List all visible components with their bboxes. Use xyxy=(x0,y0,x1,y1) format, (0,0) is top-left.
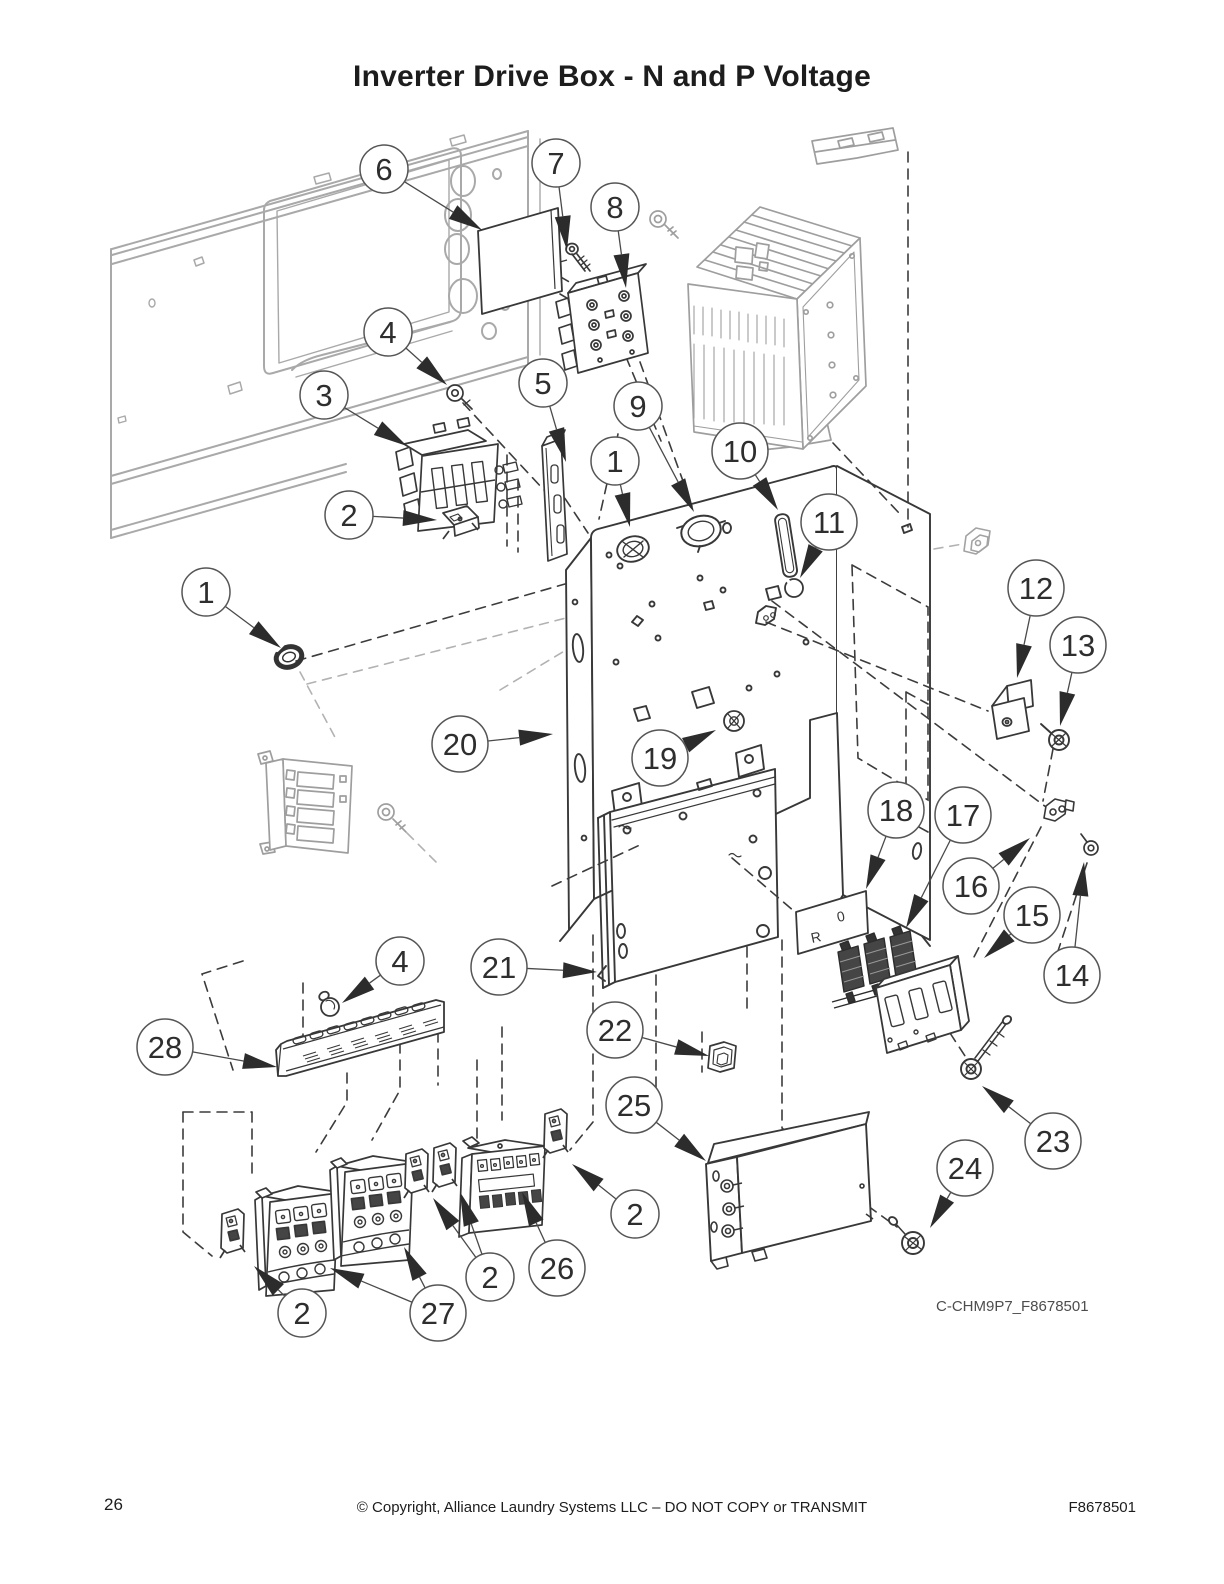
callout-28: 28 xyxy=(137,1019,277,1075)
cage-clip-ghost xyxy=(964,528,990,554)
exploded-parts-diagram: 0 R xyxy=(0,0,1224,1584)
svg-text:5: 5 xyxy=(534,366,551,401)
din-rail-28 xyxy=(276,1000,444,1076)
callout-1: 1 xyxy=(591,437,639,527)
callout-21: 21 xyxy=(471,939,597,995)
svg-text:4: 4 xyxy=(379,315,396,350)
footer-copyright: © Copyright, Alliance Laundry Systems LL… xyxy=(0,1499,1224,1516)
cover-plate xyxy=(478,208,567,314)
callout-20: 20 xyxy=(432,716,553,772)
callout-4: 4 xyxy=(342,937,424,1003)
svg-text:8: 8 xyxy=(606,190,623,225)
svg-text:1: 1 xyxy=(606,444,623,479)
svg-text:26: 26 xyxy=(540,1251,574,1286)
svg-text:15: 15 xyxy=(1015,898,1049,933)
svg-text:20: 20 xyxy=(443,727,477,762)
svg-text:3: 3 xyxy=(315,378,332,413)
svg-text:17: 17 xyxy=(946,798,980,833)
emi-filter-25 xyxy=(706,1112,873,1269)
svg-text:18: 18 xyxy=(879,793,913,828)
svg-text:2: 2 xyxy=(626,1197,643,1232)
svg-text:2: 2 xyxy=(481,1260,498,1295)
callout-25: 25 xyxy=(606,1077,706,1161)
svg-text:9: 9 xyxy=(629,389,646,424)
svg-text:23: 23 xyxy=(1036,1124,1070,1159)
svg-text:1: 1 xyxy=(197,575,214,610)
callout-26: 26 xyxy=(522,1192,585,1296)
label-plate-18 xyxy=(796,891,868,954)
svg-text:6: 6 xyxy=(375,152,392,187)
screw-14 xyxy=(1081,834,1098,855)
svg-text:24: 24 xyxy=(948,1151,982,1186)
svg-text:16: 16 xyxy=(954,869,988,904)
terminal-block-8 xyxy=(556,264,648,373)
fuse-holder-15 xyxy=(876,956,969,1053)
svg-text:19: 19 xyxy=(643,741,677,776)
grommet-1 xyxy=(274,643,305,670)
svg-text:22: 22 xyxy=(598,1013,632,1048)
svg-text:11: 11 xyxy=(813,505,845,540)
svg-text:25: 25 xyxy=(617,1088,651,1123)
aux-contact-2-right xyxy=(543,1109,568,1158)
bracket-12 xyxy=(992,680,1033,739)
clip-22 xyxy=(708,1042,736,1072)
aux-contact-2-mid2 xyxy=(432,1143,457,1192)
svg-text:2: 2 xyxy=(293,1296,310,1331)
aux-contact-2-mid1 xyxy=(404,1149,429,1198)
svg-text:27: 27 xyxy=(421,1296,455,1331)
screw-23 xyxy=(961,1014,1013,1079)
manual-page: Inverter Drive Box - N and P Voltage xyxy=(0,0,1224,1584)
screw-4-lower xyxy=(318,990,339,1016)
svg-text:7: 7 xyxy=(547,146,564,181)
svg-text:2: 2 xyxy=(340,498,357,533)
svg-text:14: 14 xyxy=(1055,958,1089,993)
contactor-27-right xyxy=(330,1156,413,1266)
cage-nut-16 xyxy=(1044,799,1074,821)
screw-13 xyxy=(1041,724,1069,750)
callout-24: 24 xyxy=(930,1140,993,1228)
svg-text:28: 28 xyxy=(148,1030,182,1065)
callout-1: 1 xyxy=(182,568,281,648)
inverter-drive-unit xyxy=(650,128,898,451)
callout-22: 22 xyxy=(587,1002,709,1058)
aux-contact-2-left xyxy=(220,1209,245,1258)
callout-3: 3 xyxy=(300,371,407,446)
svg-text:10: 10 xyxy=(723,434,757,469)
callout-23: 23 xyxy=(982,1086,1081,1169)
footer-doc-number: F8678501 xyxy=(1068,1499,1136,1516)
callout-4: 4 xyxy=(364,308,447,385)
callout-13: 13 xyxy=(1050,617,1106,726)
relay-assembly xyxy=(258,751,406,854)
svg-text:13: 13 xyxy=(1061,628,1095,663)
diagram-code: C-CHM9P7_F8678501 xyxy=(936,1298,1089,1315)
svg-text:4: 4 xyxy=(391,944,408,979)
callout-2: 2 xyxy=(572,1164,659,1238)
svg-text:21: 21 xyxy=(482,950,516,985)
screw-4-upper xyxy=(447,385,472,409)
screw-24 xyxy=(887,1215,924,1254)
svg-text:12: 12 xyxy=(1019,571,1053,606)
screw-7 xyxy=(566,244,590,272)
